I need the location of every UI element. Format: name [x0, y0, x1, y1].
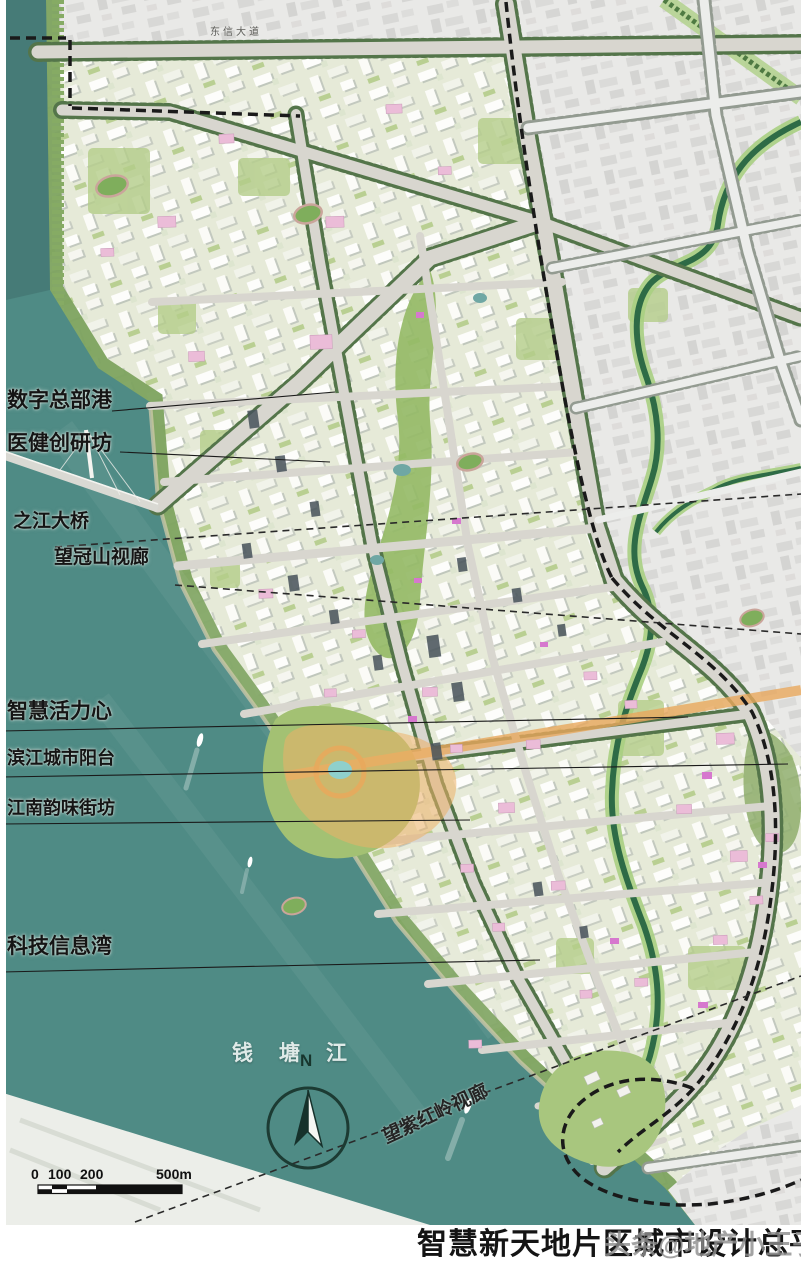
label-zhijiang-bridge: 之江大桥	[13, 512, 89, 531]
district-label-tech-info-bay: 科技信息湾	[7, 936, 112, 957]
district-label-medical-innovation: 医健创研坊	[7, 433, 112, 454]
district-label-riverside-city-balcony: 滨江城市阳台	[7, 749, 115, 767]
compass-north-label: N	[300, 1052, 312, 1069]
master-plan-screenshot: 东信大道 数字总部港 医健创研坊 之江大桥 望冠山视廊 智慧活力心 滨江城市阳台…	[0, 0, 801, 1269]
district-label-jiangnan-charm-blocks: 江南韵味街坊	[7, 799, 115, 817]
scale-tick-500m: 500m	[156, 1167, 192, 1181]
district-label-digital-hq-port: 数字总部港	[7, 390, 112, 411]
left-margin	[0, 0, 6, 1269]
scale-bar	[38, 1185, 182, 1194]
district-label-smart-vitality-core: 智慧活力心	[7, 701, 112, 722]
road-label-dongxin-avenue: 东信大道	[210, 28, 262, 38]
scale-tick-0: 0	[31, 1167, 39, 1181]
scale-tick-100: 100	[48, 1167, 71, 1181]
label-wangguanshan-corridor: 望冠山视廊	[54, 548, 149, 567]
scale-tick-200: 200	[80, 1167, 103, 1181]
plan-map-canvas	[0, 0, 801, 1269]
watermark-toutiao: 头条@地产小王子	[604, 1232, 801, 1259]
